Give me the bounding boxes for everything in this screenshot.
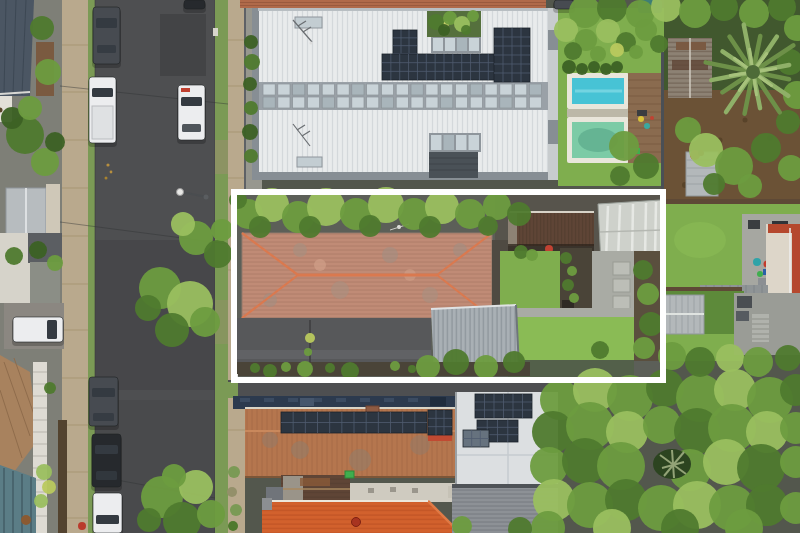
tree-canopy: [197, 500, 225, 528]
window-cell: [293, 97, 305, 108]
window-cell: [278, 84, 290, 95]
window-cell: [485, 84, 497, 95]
tree-canopy: [461, 25, 471, 35]
window-cell: [426, 84, 438, 95]
window-cell: [293, 84, 305, 95]
tree-canopy: [567, 266, 577, 276]
tree-canopy: [30, 16, 54, 40]
parked-car: [91, 434, 122, 491]
windshield: [95, 445, 118, 454]
window-cell: [263, 97, 275, 108]
tree-canopy: [5, 247, 23, 265]
solar-array: [281, 412, 427, 433]
tree-canopy: [242, 124, 258, 140]
tree-canopy: [34, 494, 48, 508]
roof-vent: [352, 518, 361, 527]
tree-canopy: [650, 35, 668, 53]
tree-canopy: [639, 312, 663, 336]
window-cell: [352, 84, 364, 95]
parked-car: [92, 7, 121, 68]
palm-crown: [746, 65, 760, 79]
window-cell: [470, 84, 482, 95]
window-cell: [455, 97, 467, 108]
window-cell: [529, 84, 541, 95]
tree-canopy: [633, 153, 659, 179]
window-cell: [426, 97, 438, 108]
window-cell: [396, 97, 408, 108]
brown-pot: [21, 515, 31, 525]
tree-canopy: [263, 364, 277, 378]
tree-canopy: [31, 148, 59, 176]
window-cell: [470, 97, 482, 108]
tree-canopy: [751, 133, 781, 163]
tree-canopy: [611, 61, 623, 73]
tree-canopy: [564, 42, 582, 60]
tree-canopy: [562, 60, 576, 74]
parked-car: [88, 77, 117, 147]
tree-canopy: [359, 215, 381, 237]
window-cell: [322, 97, 334, 108]
tree-canopy: [419, 216, 441, 238]
window-cell: [455, 84, 467, 95]
tree-canopy: [243, 77, 257, 91]
window-cell: [500, 97, 512, 108]
tree-canopy: [155, 313, 189, 347]
window-cell: [411, 97, 423, 108]
parked-car: [12, 317, 64, 346]
skylight: [297, 157, 322, 167]
window-cell: [441, 84, 453, 95]
tree-canopy: [507, 202, 531, 226]
tree-canopy: [416, 355, 440, 379]
tree-canopy: [703, 173, 725, 195]
tree-canopy: [478, 216, 498, 236]
tree-canopy: [738, 174, 762, 198]
rear-lawn-lower: [508, 317, 634, 360]
window-cell: [307, 97, 319, 108]
tree-canopy: [737, 444, 785, 492]
window-cell: [515, 97, 527, 108]
tree-canopy: [244, 101, 258, 115]
tree-canopy: [281, 362, 291, 372]
tree-canopy: [211, 219, 233, 241]
tree-canopy: [250, 363, 260, 373]
window-cell: [367, 97, 379, 108]
tree-canopy: [514, 245, 528, 259]
tree-canopy: [35, 59, 61, 85]
tree-canopy: [530, 447, 568, 485]
tree-canopy: [629, 45, 643, 59]
tree-canopy: [325, 363, 335, 373]
window-cell: [411, 84, 423, 95]
window-cell: [441, 97, 453, 108]
window-cell: [337, 97, 349, 108]
tree-canopy: [716, 344, 744, 372]
parked-car: [183, 0, 206, 13]
canopy-gap: [653, 449, 691, 479]
tree-canopy: [244, 54, 260, 70]
toy: [753, 258, 761, 266]
windshield: [92, 88, 113, 97]
windshield: [92, 388, 115, 397]
tree-canopy: [588, 61, 600, 73]
tree-canopy: [467, 10, 479, 22]
tree-canopy: [685, 347, 715, 377]
tree-canopy: [610, 43, 624, 57]
solar-array: [428, 410, 452, 435]
tree-canopy: [408, 365, 416, 373]
tree-canopy: [576, 63, 588, 75]
tree-canopy: [554, 18, 578, 42]
tree-canopy: [249, 216, 271, 238]
window-cell: [367, 84, 379, 95]
window-cell: [396, 84, 408, 95]
window-cell: [381, 84, 393, 95]
window-cell: [307, 84, 319, 95]
window-cell: [263, 84, 275, 95]
tree-canopy: [47, 255, 63, 271]
brown-fence: [58, 420, 67, 533]
window-cell: [322, 84, 334, 95]
tree-canopy: [562, 279, 574, 291]
solar-array: [475, 394, 532, 418]
tree-canopy: [390, 361, 400, 371]
tree-canopy: [45, 132, 65, 152]
white-parapet: [350, 483, 456, 502]
solar-array: [463, 430, 489, 447]
windshield: [96, 515, 119, 524]
tree-canopy: [483, 192, 511, 220]
tree-canopy: [560, 252, 572, 264]
parked-car: [88, 377, 119, 430]
windshield: [181, 97, 202, 106]
window-cell: [337, 84, 349, 95]
tree-canopy: [42, 480, 56, 494]
solar-array: [494, 28, 530, 82]
tree-canopy: [171, 212, 195, 236]
tree-canopy: [137, 508, 161, 532]
tree-canopy: [609, 131, 639, 161]
tree-canopy: [590, 46, 606, 62]
tree-canopy: [503, 351, 525, 373]
tree-canopy: [600, 63, 612, 75]
tree-canopy: [190, 307, 220, 337]
stairs: [752, 314, 769, 342]
terracotta-strip: [240, 0, 546, 8]
window-cell: [500, 84, 512, 95]
driveway-apron: [160, 14, 206, 76]
tree-canopy: [438, 24, 450, 36]
tree-canopy: [135, 295, 161, 321]
tree-canopy: [610, 166, 630, 186]
window-cell: [278, 97, 290, 108]
tree-canopy: [44, 382, 56, 394]
tree-canopy: [244, 35, 258, 49]
window-cell: [529, 97, 541, 108]
window-cell: [352, 97, 364, 108]
window-cell: [381, 97, 393, 108]
tree-canopy: [162, 464, 186, 488]
tree-canopy: [743, 347, 773, 377]
window-cell: [515, 84, 527, 95]
solar-array: [382, 54, 506, 80]
tree-canopy: [775, 345, 800, 371]
rear-fence: [664, 199, 800, 204]
tree-canopy: [637, 283, 659, 305]
aerial-photo: [0, 0, 800, 533]
parked-car: [92, 493, 123, 533]
tree-canopy: [443, 349, 469, 375]
windshield: [47, 320, 57, 339]
window-cell: [485, 97, 497, 108]
tree-canopy: [591, 341, 609, 359]
tree-canopy: [526, 249, 538, 261]
tree-canopy: [244, 149, 258, 163]
red-pot: [78, 522, 86, 530]
streetlight-lamp: [177, 189, 184, 196]
tree-canopy: [204, 240, 232, 268]
tree-canopy: [18, 96, 42, 120]
parked-car: [177, 85, 206, 144]
green-object: [345, 471, 354, 478]
neighbor-yard-right: [664, 204, 800, 361]
tree-canopy: [633, 337, 655, 359]
tree-canopy: [633, 260, 653, 280]
tree-canopy: [569, 293, 579, 303]
tree-canopy: [305, 333, 315, 343]
windshield: [96, 18, 117, 28]
tree-canopy: [29, 241, 47, 259]
roof-courtyard: [429, 152, 478, 178]
tree-canopy: [36, 464, 52, 480]
power-pole: [204, 195, 209, 200]
tree-canopy: [297, 361, 313, 377]
tree-canopy: [474, 355, 498, 379]
tree-canopy: [299, 216, 321, 238]
tree-canopy: [304, 348, 312, 356]
